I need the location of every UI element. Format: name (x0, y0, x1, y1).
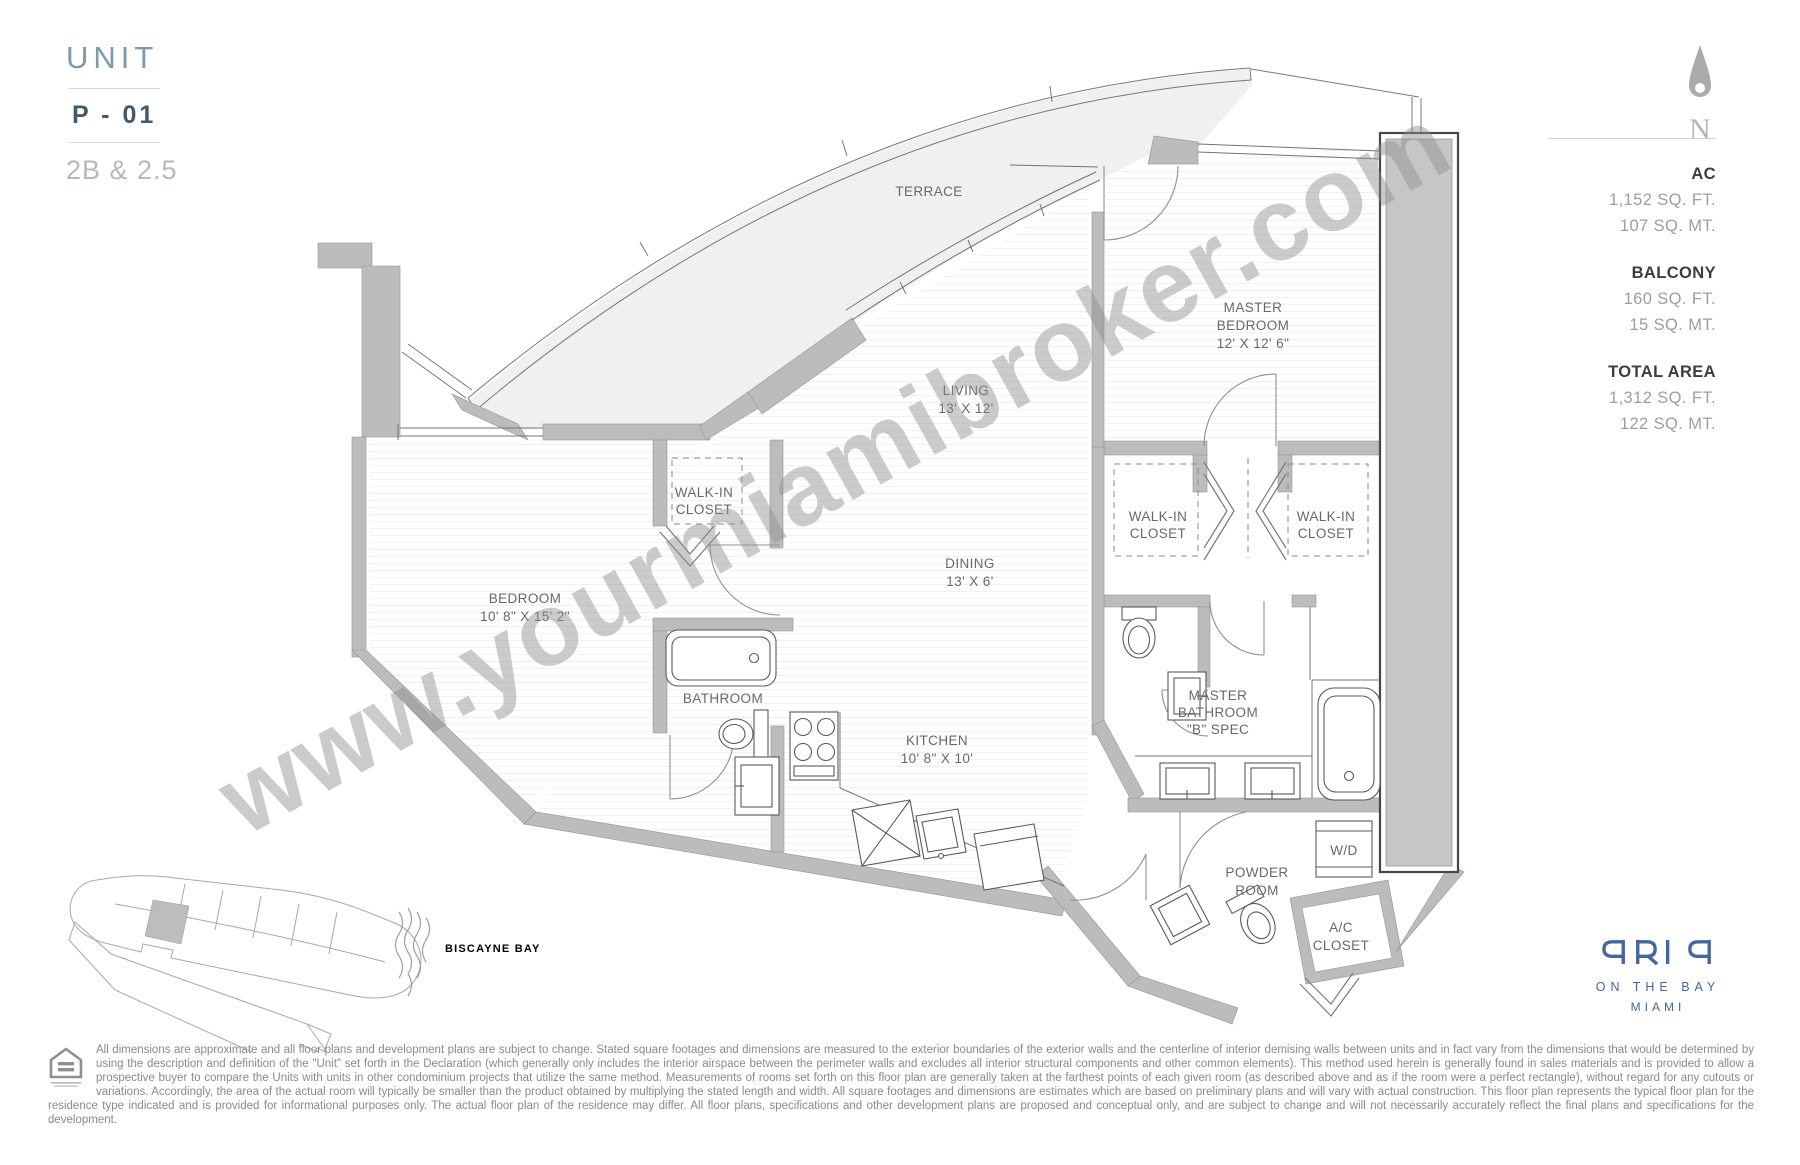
room-label-walkin-closet: CLOSET (1298, 526, 1354, 541)
disclaimer-text: All dimensions are approximate and all f… (48, 1044, 1754, 1126)
building-core (1380, 133, 1458, 872)
site-plan-icon: BISCAYNE BAY (55, 862, 575, 1052)
bathtub-icon (666, 630, 776, 686)
room-label-master-bathroom: MASTER (1189, 688, 1248, 703)
room-label-living: LIVING (943, 383, 990, 398)
kitchen-sink-icon (916, 809, 966, 859)
room-label-walkin-closet: WALK-IN (675, 485, 734, 500)
room-label-walkin-closet: CLOSET (1130, 526, 1186, 541)
room-label-bedroom-dims: 10' 8" X 15' 2" (480, 609, 570, 624)
room-label-wd: W/D (1330, 843, 1357, 858)
equal-housing-icon (48, 1046, 86, 1092)
room-label-walkin-closet: WALK-IN (1129, 509, 1188, 524)
room-label-walkin-closet: WALK-IN (1297, 509, 1356, 524)
room-label-bedroom: BEDROOM (489, 591, 562, 606)
room-label-ac-closet: CLOSET (1313, 938, 1369, 953)
logo-tagline: ON THE BAY (1578, 980, 1738, 994)
room-label-master-bedroom: BEDROOM (1217, 318, 1290, 333)
powder-sink-icon (1150, 885, 1210, 945)
room-label-master-bedroom-dims: 12' X 12' 6" (1217, 336, 1290, 351)
unit-location-highlight (145, 900, 189, 944)
room-label-ac-closet: A/C (1329, 920, 1353, 935)
room-label-kitchen: KITCHEN (906, 733, 968, 748)
floorplan-sheet: UNIT P - 01 2B & 2.5 N AC 1,152 SQ. FT. … (0, 0, 1800, 1165)
room-label-living-dims: 13' X 12' (938, 401, 993, 416)
bathroom-sink-icon (735, 757, 779, 815)
room-label-master-bathroom: BATHROOM (1178, 705, 1258, 720)
room-label-terrace: TERRACE (895, 184, 962, 199)
stove-icon (790, 712, 838, 780)
master-bathtub-icon (1318, 688, 1380, 800)
dishwasher-icon (974, 824, 1044, 890)
aria-logo: ON THE BAY MIAMI (1578, 938, 1738, 1014)
aria-wordmark-icon (1593, 938, 1723, 966)
key-plan: BISCAYNE BAY (55, 862, 575, 1057)
vanity-sinks-icon (1160, 763, 1300, 799)
room-label-bathroom: BATHROOM (683, 691, 763, 706)
biscayne-bay-label: BISCAYNE BAY (445, 943, 541, 955)
room-label-master-bedroom: MASTER (1224, 300, 1283, 315)
disclaimer: All dimensions are approximate and all f… (48, 1044, 1754, 1127)
wc-toilet-icon (1122, 607, 1156, 658)
fridge-icon (852, 800, 920, 866)
room-label-powder-room: POWDER (1225, 865, 1288, 880)
room-label-walkin-closet: CLOSET (676, 502, 732, 517)
room-label-dining-dims: 13' X 6' (946, 574, 993, 589)
room-label-master-bathroom-spec: "B" SPEC (1187, 722, 1249, 737)
room-label-kitchen-dims: 10' 8" X 10' (901, 751, 974, 766)
room-label-dining: DINING (945, 556, 995, 571)
logo-city: MIAMI (1578, 1000, 1738, 1014)
room-label-powder-room: ROOM (1235, 883, 1279, 898)
